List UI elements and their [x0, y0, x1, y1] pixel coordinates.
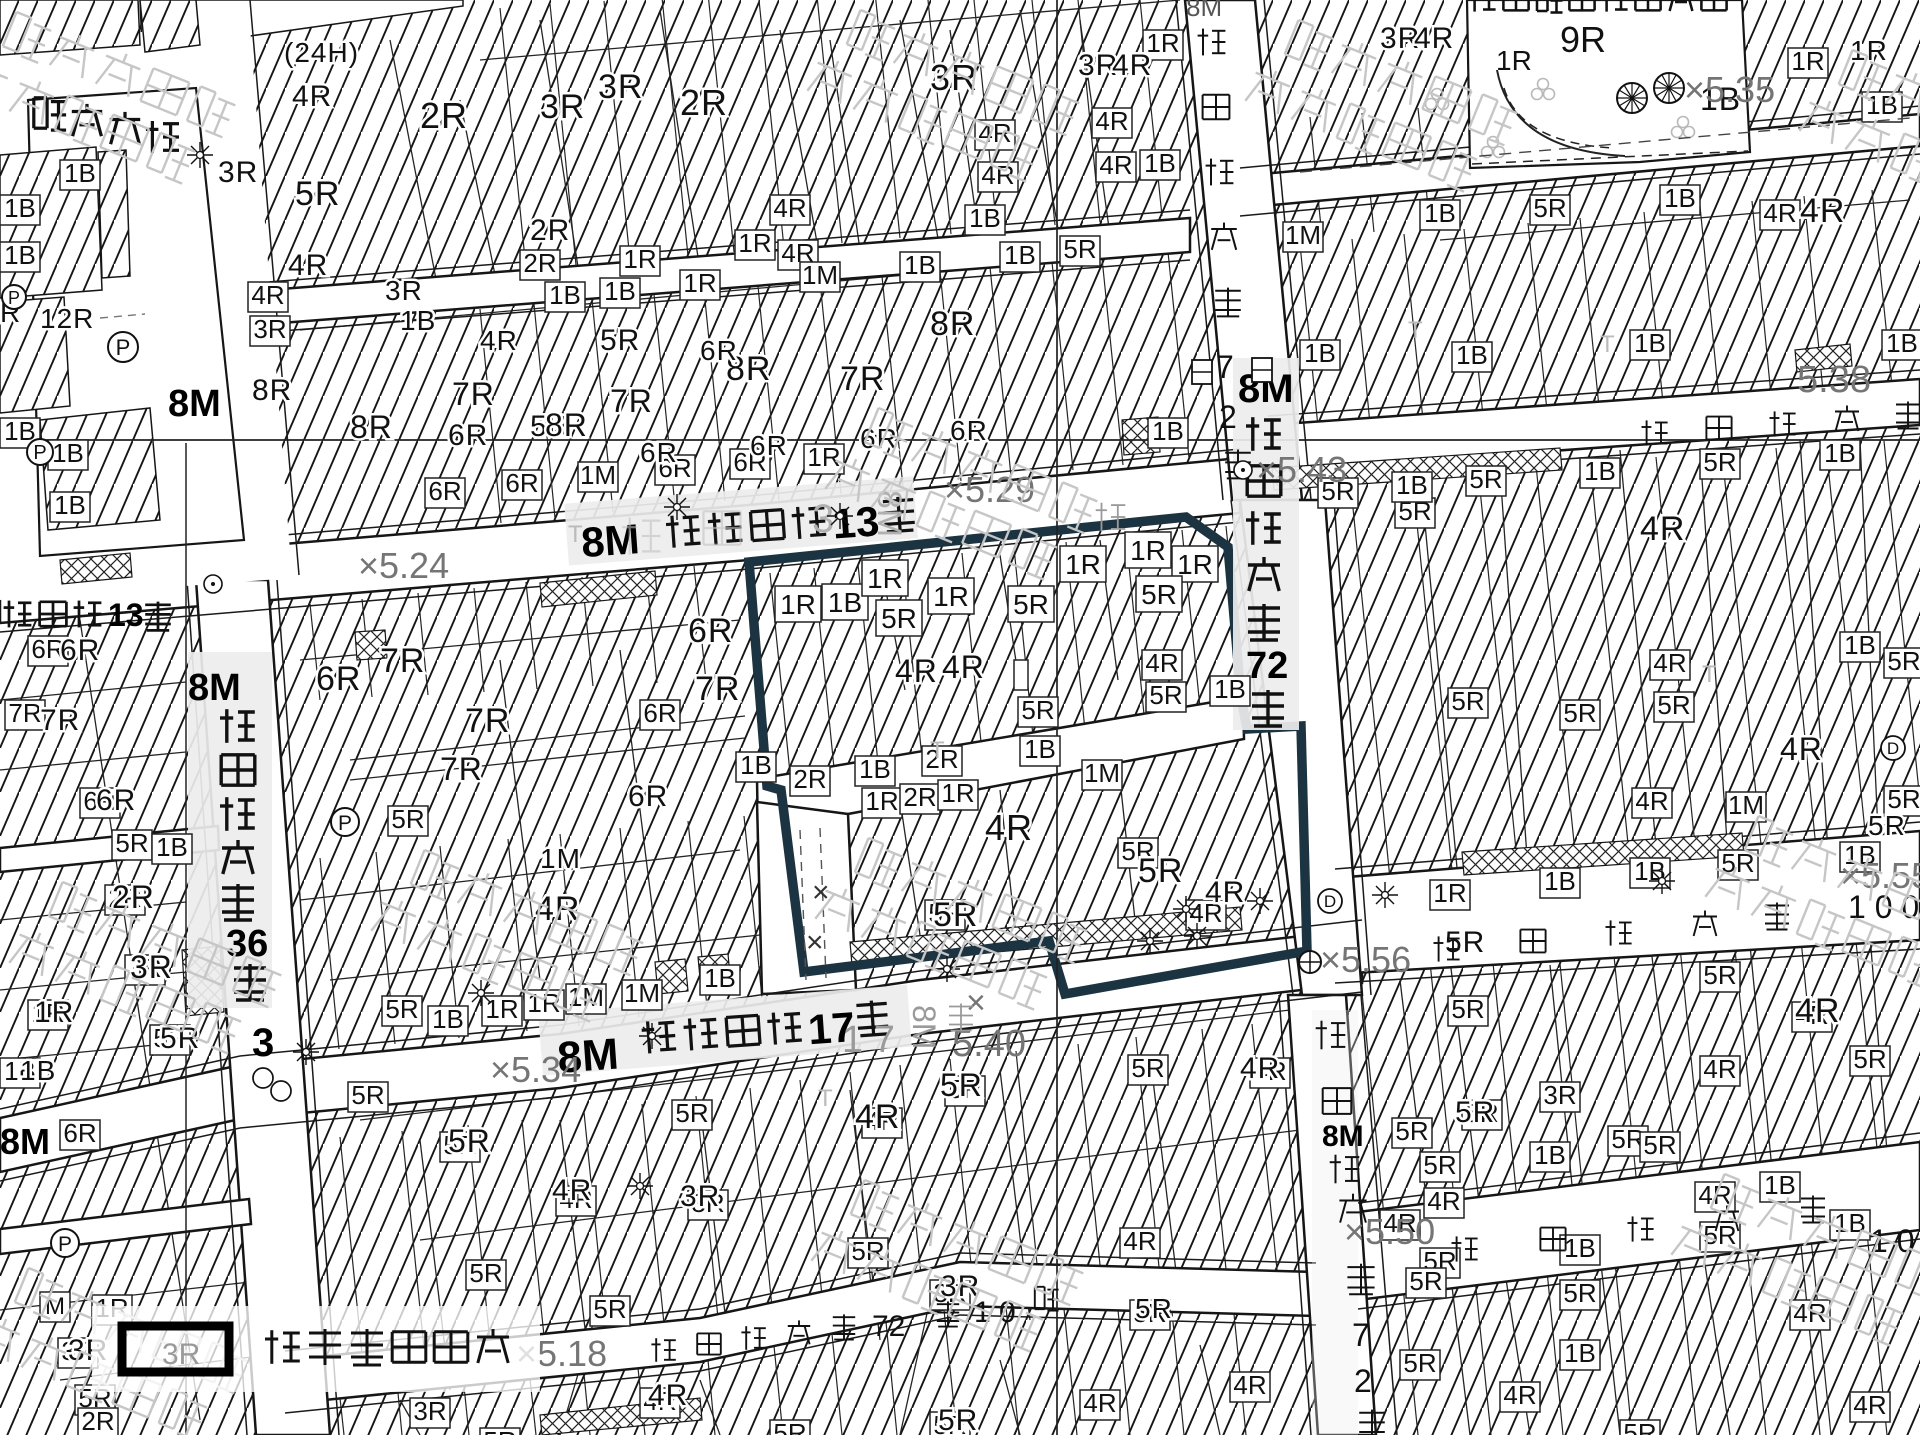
svg-text:P: P	[58, 1233, 72, 1256]
svg-text:4R: 4R	[1123, 1226, 1156, 1256]
svg-text:5R: 5R	[1013, 589, 1049, 620]
svg-text:4R: 4R	[1780, 731, 1823, 767]
svg-text:1B: 1B	[1844, 630, 1876, 660]
svg-text:5R: 5R	[1451, 994, 1484, 1024]
svg-text:13: 13	[108, 597, 144, 633]
svg-text:1M: 1M	[1084, 758, 1120, 788]
svg-text:5R: 5R	[675, 1098, 708, 1128]
svg-text:5R: 5R	[1887, 646, 1920, 676]
svg-text:×5.35: ×5.35	[1684, 69, 1775, 110]
svg-text:4R: 4R	[1763, 198, 1796, 228]
svg-text:6R: 6R	[688, 612, 733, 650]
svg-text:×5.24: ×5.24	[358, 545, 449, 586]
svg-text:7R: 7R	[465, 702, 510, 740]
svg-text:5R: 5R	[1021, 695, 1054, 725]
svg-text:5R: 5R	[1563, 698, 1596, 728]
svg-text:4R: 4R	[292, 80, 332, 113]
svg-text:8R: 8R	[545, 407, 588, 443]
svg-text:8M: 8M	[870, 490, 908, 537]
svg-text:4R: 4R	[1800, 192, 1845, 230]
svg-text:1B: 1B	[604, 276, 636, 306]
svg-text:1B: 1B	[549, 280, 581, 310]
svg-text:5R: 5R	[1563, 1278, 1596, 1308]
svg-text:3R: 3R	[598, 68, 643, 106]
svg-text:1B: 1B	[859, 754, 891, 784]
svg-text:1B: 1B	[1764, 1170, 1796, 1200]
svg-text:6R: 6R	[505, 468, 538, 498]
svg-text:5R: 5R	[1451, 686, 1484, 716]
svg-text:3R: 3R	[540, 88, 585, 126]
svg-text:2R: 2R	[523, 248, 556, 278]
svg-text:4R: 4R	[1414, 22, 1454, 55]
svg-text:4R: 4R	[535, 890, 580, 928]
svg-text:5R: 5R	[933, 896, 978, 934]
svg-text:8R: 8R	[252, 374, 292, 407]
svg-text:5R: 5R	[1853, 1044, 1886, 1074]
svg-text:6R: 6R	[750, 430, 788, 461]
svg-text:T: T	[818, 1085, 833, 1112]
svg-text:4R: 4R	[1145, 648, 1178, 678]
svg-text:1 7: 1 7	[842, 1019, 895, 1061]
svg-text:2R: 2R	[81, 1406, 114, 1435]
svg-text:8M: 8M	[188, 667, 241, 709]
svg-text:5R: 5R	[881, 603, 917, 634]
svg-text:5R: 5R	[1141, 579, 1177, 610]
svg-text:5R: 5R	[469, 1258, 502, 1288]
svg-text:1B: 1B	[1214, 674, 1246, 704]
svg-text:×5.43: ×5.43	[1256, 449, 1347, 490]
svg-text:1B: 1B	[1152, 416, 1184, 446]
svg-text:5R: 5R	[1409, 1266, 1442, 1296]
svg-text:×: ×	[806, 926, 824, 959]
svg-text:1R: 1R	[867, 563, 903, 594]
svg-text:8M: 8M	[0, 1121, 50, 1162]
svg-text:T: T	[1408, 317, 1423, 344]
svg-text:5R: 5R	[593, 1294, 626, 1324]
svg-text:5R: 5R	[1149, 680, 1182, 710]
svg-text:3R: 3R	[253, 314, 286, 344]
svg-text:3R: 3R	[1543, 1080, 1576, 1110]
svg-text:D: D	[1324, 892, 1336, 911]
svg-text:8M: 8M	[1186, 0, 1222, 22]
svg-text:5R: 5R	[1423, 1150, 1456, 1180]
svg-text:6R: 6R	[428, 476, 461, 506]
svg-text:1B: 1B	[1396, 470, 1428, 500]
svg-text:4R: 4R	[1853, 1390, 1886, 1420]
svg-text:4R: 4R	[1653, 648, 1686, 678]
svg-text:2R: 2R	[903, 782, 936, 812]
svg-text:5R: 5R	[1455, 1096, 1495, 1129]
svg-text:3R: 3R	[162, 1338, 200, 1371]
svg-text:72: 72	[1246, 645, 1288, 687]
svg-text:1B: 1B	[904, 250, 936, 280]
svg-text:1B: 1B	[400, 305, 436, 336]
svg-text:6R: 6R	[628, 780, 668, 813]
svg-text:6R: 6R	[316, 660, 361, 698]
svg-text:6R: 6R	[60, 634, 100, 667]
svg-text:1B: 1B	[64, 158, 96, 188]
svg-text:1R: 1R	[1433, 878, 1466, 908]
svg-text:1B: 1B	[1634, 328, 1666, 358]
svg-text:1B: 1B	[1004, 240, 1036, 270]
svg-text:5R: 5R	[483, 1426, 516, 1435]
svg-text:8R: 8R	[350, 409, 393, 445]
svg-text:P: P	[338, 812, 352, 835]
svg-text:7R: 7R	[440, 751, 483, 787]
svg-text:6R: 6R	[448, 419, 488, 452]
svg-text:T: T	[930, 737, 945, 764]
svg-text:1R: 1R	[941, 778, 974, 808]
svg-text:2R: 2R	[112, 879, 155, 915]
svg-text:5R: 5R	[1445, 926, 1485, 959]
svg-text:4R: 4R	[942, 649, 985, 685]
svg-text:7R: 7R	[695, 670, 740, 708]
svg-text:1R: 1R	[1791, 46, 1824, 76]
svg-text:8M: 8M	[1322, 1120, 1364, 1153]
svg-text:1R: 1R	[683, 268, 716, 298]
svg-text:5R: 5R	[1868, 810, 1906, 841]
svg-text:4R: 4R	[480, 325, 518, 356]
svg-text:5R: 5R	[1703, 447, 1736, 477]
svg-text:5R: 5R	[385, 994, 418, 1024]
svg-text:1B: 1B	[1564, 1338, 1596, 1368]
svg-text:6R: 6R	[96, 784, 136, 817]
svg-text:1B: 1B	[1886, 328, 1918, 358]
svg-text:5R: 5R	[938, 1404, 978, 1435]
svg-text:1B: 1B	[1664, 183, 1696, 213]
svg-text:4R: 4R	[1640, 510, 1685, 548]
svg-text:5R: 5R	[351, 1080, 384, 1110]
svg-text:2: 2	[1354, 1363, 1372, 1399]
svg-text:1B: 1B	[1424, 198, 1456, 228]
svg-text:1B: 1B	[828, 587, 862, 618]
svg-text:×5.50: ×5.50	[1344, 1211, 1435, 1252]
svg-text:4R: 4R	[1112, 49, 1152, 82]
svg-text:1B: 1B	[1824, 438, 1856, 468]
svg-text:2R: 2R	[530, 214, 570, 247]
svg-text:4R: 4R	[1503, 1380, 1536, 1410]
svg-text:7R: 7R	[8, 698, 41, 728]
svg-text:1R: 1R	[34, 996, 74, 1029]
svg-text:5R: 5R	[448, 1123, 491, 1159]
svg-text:5R: 5R	[295, 175, 340, 213]
svg-text:4R: 4R	[648, 1379, 688, 1412]
svg-text:5R: 5R	[1403, 1348, 1436, 1378]
svg-text:7R: 7R	[610, 383, 653, 419]
svg-text:1B: 1B	[1564, 1233, 1596, 1263]
svg-text:1M: 1M	[802, 260, 838, 290]
svg-text:1B: 1B	[969, 203, 1001, 233]
svg-text:5R: 5R	[1131, 1053, 1164, 1083]
svg-text:2: 2	[1219, 399, 1237, 435]
svg-text:1B: 1B	[1544, 866, 1576, 896]
svg-text:2R: 2R	[793, 764, 826, 794]
svg-text:P: P	[116, 335, 131, 360]
svg-text:6R: 6R	[63, 1118, 96, 1148]
svg-text:72: 72	[872, 1310, 905, 1343]
svg-text:2R: 2R	[680, 82, 728, 123]
svg-text:5R: 5R	[391, 804, 424, 834]
svg-text:4R: 4R	[1795, 992, 1840, 1030]
svg-text:1M: 1M	[1728, 790, 1764, 820]
svg-text:1R: 1R	[865, 786, 898, 816]
svg-text:7R: 7R	[380, 642, 425, 680]
svg-text:4R: 4R	[1240, 1052, 1280, 1085]
svg-text:5R: 5R	[940, 1067, 983, 1103]
svg-text:P: P	[33, 442, 46, 464]
svg-text:(24H): (24H)	[284, 37, 359, 68]
svg-text:5R: 5R	[1395, 1116, 1428, 1146]
svg-text:1B: 1B	[156, 832, 188, 862]
svg-text:P: P	[8, 288, 20, 308]
svg-text:6R: 6R	[950, 415, 988, 446]
svg-text:1R: 1R	[807, 442, 840, 472]
svg-text:7R: 7R	[452, 376, 495, 412]
svg-text:1B: 1B	[4, 240, 36, 270]
svg-text:8M: 8M	[168, 383, 221, 425]
svg-text:6R: 6R	[640, 437, 678, 468]
svg-text:T: T	[1600, 331, 1615, 358]
svg-text:1B: 1B	[704, 963, 736, 993]
svg-text:1R: 1R	[1130, 535, 1166, 566]
svg-text:5R: 5R	[1063, 234, 1096, 264]
svg-text:1R: 1R	[1065, 549, 1101, 580]
svg-text:T: T	[1702, 661, 1717, 688]
svg-text:4R: 4R	[1703, 1054, 1736, 1084]
svg-text:7R: 7R	[40, 704, 80, 737]
svg-text:4R: 4R	[1635, 786, 1668, 816]
svg-text:3R: 3R	[218, 156, 258, 189]
svg-text:8R: 8R	[930, 305, 975, 343]
svg-text:4R: 4R	[251, 280, 284, 310]
svg-text:1M: 1M	[624, 978, 660, 1008]
svg-text:1R: 1R	[623, 244, 656, 274]
svg-text:12R: 12R	[40, 303, 94, 334]
svg-text:1M: 1M	[540, 843, 581, 874]
svg-text:4R: 4R	[895, 653, 938, 689]
svg-text:3R: 3R	[385, 275, 423, 306]
svg-text:4R: 4R	[288, 249, 328, 282]
svg-text:1B: 1B	[52, 438, 84, 468]
svg-text:1R: 1R	[1496, 45, 1532, 76]
svg-text:1B: 1B	[1534, 1140, 1566, 1170]
svg-text:5R: 5R	[1703, 1220, 1736, 1250]
svg-text:6R: 6R	[643, 698, 676, 728]
svg-text:4R: 4R	[552, 1174, 592, 1207]
svg-text:5R: 5R	[1138, 852, 1183, 890]
svg-text:5R: 5R	[115, 828, 148, 858]
svg-text:3R: 3R	[680, 1180, 720, 1213]
svg-text:6R: 6R	[700, 335, 738, 366]
svg-text:5R: 5R	[1657, 690, 1690, 720]
svg-text:4R: 4R	[1083, 1388, 1116, 1418]
svg-text:1B: 1B	[1456, 340, 1488, 370]
svg-text:1B: 1B	[20, 1055, 56, 1086]
svg-text:4R: 4R	[855, 1098, 900, 1136]
svg-text:×5.56: ×5.56	[1320, 939, 1411, 980]
svg-text:1M: 1M	[580, 460, 616, 490]
svg-text:5R: 5R	[1643, 1130, 1676, 1160]
svg-text:5.38: 5.38	[1797, 359, 1871, 401]
svg-text:5R: 5R	[773, 1418, 806, 1435]
svg-text:5R: 5R	[1533, 193, 1566, 223]
svg-text:7: 7	[1216, 349, 1234, 385]
svg-text:5R: 5R	[1623, 1418, 1656, 1435]
svg-text:9R: 9R	[1560, 19, 1606, 60]
svg-text:4R: 4R	[773, 193, 806, 223]
svg-text:4R: 4R	[1099, 150, 1132, 180]
svg-text:4R: 4R	[1233, 1370, 1266, 1400]
svg-text:3R: 3R	[413, 1396, 446, 1426]
svg-text:1M: 1M	[1285, 220, 1321, 250]
svg-text:1B: 1B	[1584, 456, 1616, 486]
svg-text:5R: 5R	[600, 324, 640, 357]
svg-text:3: 3	[812, 497, 834, 541]
svg-text:2R: 2R	[420, 95, 468, 136]
svg-text:4R: 4R	[1205, 876, 1245, 909]
svg-text:1B: 1B	[54, 490, 86, 520]
svg-text:1R: 1R	[738, 228, 771, 258]
svg-text:T: T	[568, 521, 583, 548]
svg-text:D: D	[1887, 739, 1899, 758]
svg-text:7: 7	[1352, 1317, 1370, 1353]
svg-text:8M: 8M	[906, 1005, 942, 1049]
svg-text:4R: 4R	[1095, 106, 1128, 136]
svg-text:3: 3	[252, 1021, 274, 1065]
svg-text:1B: 1B	[740, 750, 772, 780]
svg-text:1R: 1R	[485, 994, 518, 1024]
svg-text:1B: 1B	[1304, 338, 1336, 368]
svg-text:4R: 4R	[985, 807, 1033, 848]
svg-text:1R: 1R	[780, 589, 816, 620]
svg-text:1B: 1B	[1024, 734, 1056, 764]
svg-text:8M: 8M	[580, 515, 641, 566]
svg-text:7R: 7R	[840, 360, 885, 398]
svg-text:5R: 5R	[1469, 464, 1502, 494]
svg-text:1R: 1R	[933, 581, 969, 612]
svg-text:1B: 1B	[432, 1004, 464, 1034]
svg-text:5R: 5R	[1703, 960, 1736, 990]
svg-text:×5.34: ×5.34	[490, 1049, 581, 1090]
svg-text:1B: 1B	[1144, 148, 1176, 178]
svg-text:5.40: 5.40	[952, 1023, 1026, 1065]
svg-text:5R: 5R	[1135, 1293, 1173, 1324]
svg-text:1B: 1B	[4, 193, 36, 223]
